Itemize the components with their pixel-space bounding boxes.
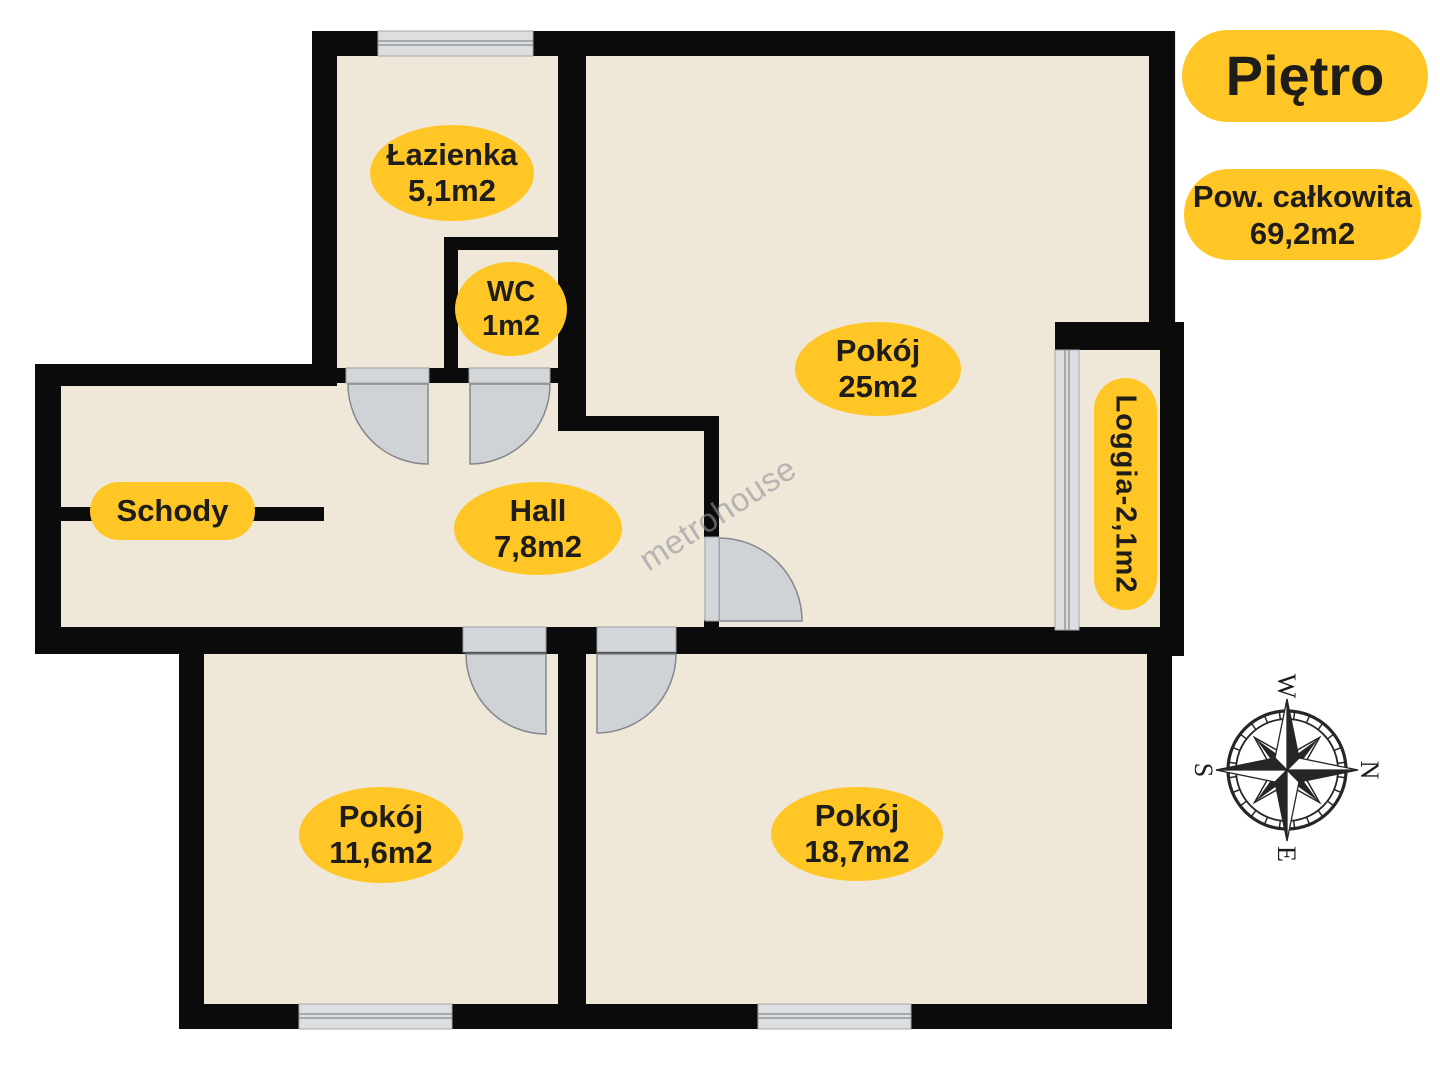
svg-text:S: S bbox=[1189, 763, 1218, 777]
svg-text:E: E bbox=[1272, 846, 1301, 862]
svg-text:N: N bbox=[1355, 761, 1384, 780]
svg-text:W: W bbox=[1272, 674, 1301, 699]
